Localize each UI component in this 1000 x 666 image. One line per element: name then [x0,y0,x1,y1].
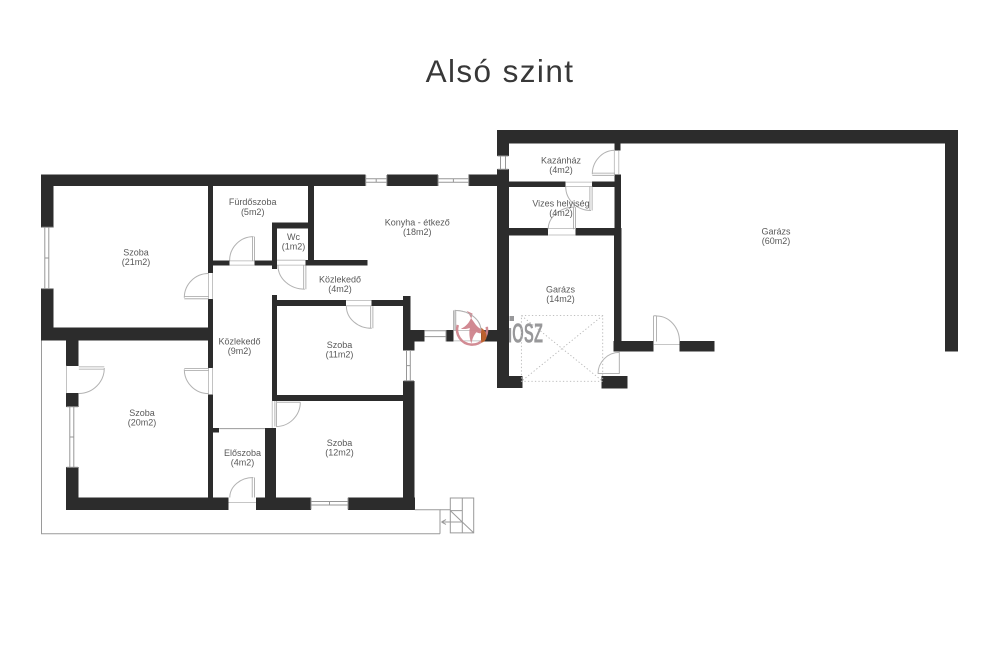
svg-text:(4m2): (4m2) [328,284,352,294]
svg-text:(18m2): (18m2) [403,227,432,237]
svg-text:(9m2): (9m2) [228,346,252,356]
svg-text:(4m2): (4m2) [549,165,573,175]
svg-text:Garázs: Garázs [761,227,791,237]
svg-text:Szoba: Szoba [327,340,353,350]
svg-text:Alsó szint: Alsó szint [426,53,575,89]
svg-text:Garázs: Garázs [546,285,576,295]
svg-text:Kazánház: Kazánház [541,156,582,166]
svg-text:Szoba: Szoba [327,438,353,448]
svg-text:(4m2): (4m2) [231,458,255,468]
svg-text:Fürdőszoba: Fürdőszoba [229,197,277,207]
svg-text:Wc: Wc [287,232,300,242]
svg-text:(21m2): (21m2) [122,257,151,267]
svg-text:Szoba: Szoba [129,408,155,418]
svg-text:(60m2): (60m2) [762,236,791,246]
svg-text:Előszoba: Előszoba [224,448,261,458]
svg-text:ıOSZ: ıOSZ [508,318,543,349]
svg-text:Szoba: Szoba [123,248,149,258]
svg-text:Konyha - étkező: Konyha - étkező [385,218,450,228]
svg-text:Közlekedő: Közlekedő [218,337,260,347]
svg-text:(1m2): (1m2) [282,242,306,252]
svg-text:Vizes helyiség: Vizes helyiség [532,199,589,209]
svg-text:(11m2): (11m2) [326,350,354,360]
svg-text:Közlekedő: Közlekedő [319,275,361,285]
svg-text:(5m2): (5m2) [241,207,265,217]
svg-text:(4m2): (4m2) [549,208,573,218]
svg-text:(14m2): (14m2) [546,294,575,304]
svg-text:(12m2): (12m2) [325,448,354,458]
svg-text:(20m2): (20m2) [128,418,157,428]
